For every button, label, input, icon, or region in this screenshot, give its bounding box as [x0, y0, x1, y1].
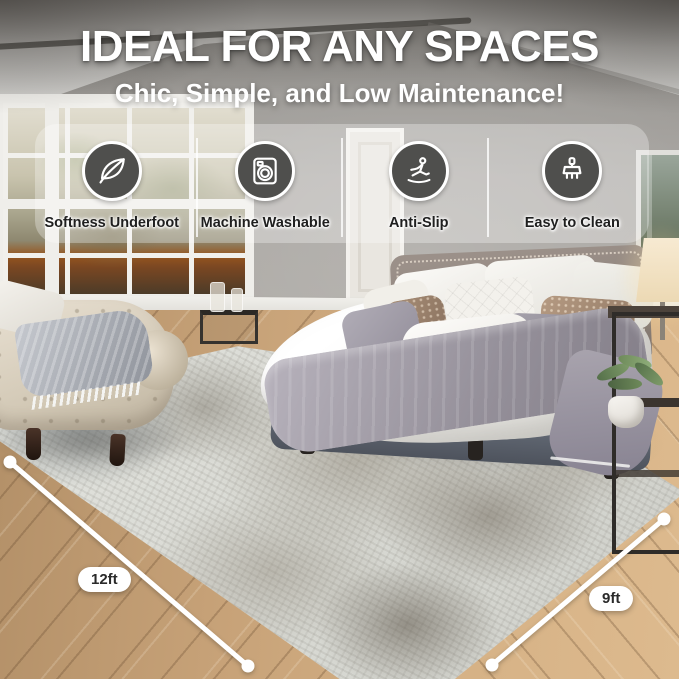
width-dimension-badge: 9ft — [589, 586, 633, 611]
chaise-leg — [26, 428, 41, 460]
features-panel: Softness Underfoot Machine Washable — [35, 124, 649, 243]
feature-label: Machine Washable — [201, 215, 330, 231]
nightstand-shelf — [616, 470, 679, 477]
chaise-leg — [109, 434, 126, 467]
cleaning-brush-icon — [542, 141, 602, 201]
slipping-person-icon — [389, 141, 449, 201]
length-dimension-badge: 12ft — [78, 567, 131, 592]
panel-divider — [341, 138, 343, 237]
candle-holder — [231, 288, 243, 312]
rug-product-infographic: IDEAL FOR ANY SPACES Chic, Simple, and L… — [0, 0, 679, 679]
feature-anti-slip: Anti-Slip — [342, 124, 496, 243]
page-title: IDEAL FOR ANY SPACES — [0, 22, 679, 72]
feature-easy-to-clean: Easy to Clean — [496, 124, 650, 243]
length-dimension-value: 12ft — [91, 571, 118, 588]
feature-label: Easy to Clean — [525, 215, 620, 231]
width-dimension-value: 9ft — [602, 590, 620, 607]
page-subtitle: Chic, Simple, and Low Maintenance! — [0, 78, 679, 109]
plant-pot — [608, 396, 644, 428]
feature-label: Anti-Slip — [389, 215, 449, 231]
left-side-table — [200, 310, 258, 344]
feature-softness-underfoot: Softness Underfoot — [35, 124, 189, 243]
candle-holder — [210, 282, 225, 312]
nightstand-frame — [612, 312, 679, 554]
panel-divider — [196, 138, 198, 237]
header: IDEAL FOR ANY SPACES Chic, Simple, and L… — [0, 0, 679, 109]
panel-divider — [487, 138, 489, 237]
washing-machine-icon — [235, 141, 295, 201]
feature-machine-washable: Machine Washable — [189, 124, 343, 243]
feather-icon — [82, 141, 142, 201]
feature-label: Softness Underfoot — [44, 215, 179, 231]
